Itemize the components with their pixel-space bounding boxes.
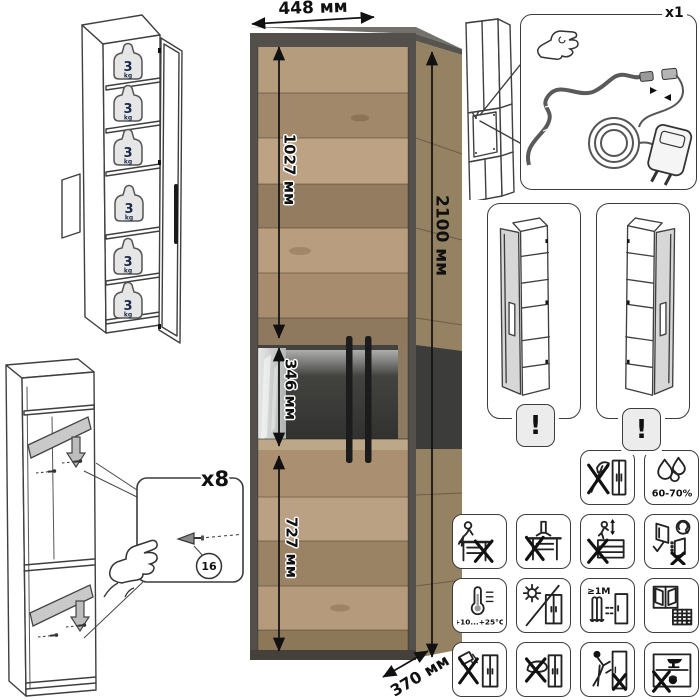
svg-text:kg: kg bbox=[124, 159, 132, 166]
hand-icon bbox=[538, 31, 578, 59]
no-climbing-icon bbox=[580, 514, 635, 569]
heater-distance-icon: ≥1M bbox=[580, 578, 635, 633]
pin-quantity: x8 bbox=[201, 467, 229, 491]
ventilation-calendar-icon: 21 bbox=[644, 578, 699, 633]
bottom-section-label: 727 мм bbox=[284, 511, 299, 585]
no-abrasive-cleaning-icon bbox=[516, 642, 571, 697]
temperature-range-icon: +10...+25°C bbox=[452, 578, 507, 633]
warning-badge: ! bbox=[622, 408, 661, 451]
no-dragging-icon bbox=[580, 642, 635, 697]
no-direct-sunlight-icon bbox=[516, 578, 571, 633]
cabinet-render bbox=[240, 8, 470, 700]
height-label: 2100 мм bbox=[433, 181, 450, 291]
led-wiring-panel bbox=[520, 14, 697, 190]
no-standing-icon bbox=[516, 514, 571, 569]
door-handle bbox=[365, 336, 372, 463]
top-section-label: 1027 мм bbox=[282, 124, 297, 216]
shelf-load-diagram: 3kg 3kg 3kg 3kg 3kg 3kg bbox=[8, 2, 210, 350]
open-door bbox=[158, 38, 182, 343]
no-heavy-items-icon bbox=[644, 642, 699, 697]
cabinet-back-view bbox=[452, 8, 524, 200]
svg-text:kg: kg bbox=[124, 312, 132, 319]
part-number-badge: 16 bbox=[197, 554, 222, 579]
svg-text:21: 21 bbox=[685, 619, 691, 625]
svg-text:≥1M: ≥1M bbox=[587, 586, 610, 597]
svg-text:kg: kg bbox=[124, 73, 132, 80]
display-section bbox=[258, 345, 408, 450]
cabinet-base bbox=[250, 650, 416, 660]
no-sharp-tools-icon bbox=[580, 450, 635, 505]
door-variant-right-panel bbox=[596, 203, 690, 419]
svg-text:kg: kg bbox=[124, 115, 132, 122]
lower-door-wood bbox=[258, 450, 408, 658]
humidity-icon: 60-70% bbox=[644, 450, 699, 505]
cable-connectors bbox=[640, 68, 678, 101]
middle-section-label: 346 мм bbox=[283, 353, 298, 427]
door-handle bbox=[174, 184, 178, 244]
variant-left-drawing bbox=[488, 204, 578, 416]
variant-right-drawing bbox=[597, 204, 687, 416]
svg-text:16: 16 bbox=[201, 560, 217, 573]
svg-text:+10...+25°C: +10...+25°C bbox=[457, 617, 503, 626]
instruction-sheet: 3kg 3kg 3kg 3kg 3kg 3kg bbox=[0, 0, 700, 700]
shelf-assembly-diagram: x8 16 bbox=[0, 345, 260, 700]
anvil-icon bbox=[667, 658, 682, 667]
power-adapter bbox=[589, 75, 693, 188]
svg-text:60-70%: 60-70% bbox=[651, 488, 692, 499]
warning-mark: ! bbox=[530, 411, 542, 441]
warning-badge: ! bbox=[516, 404, 555, 447]
warning-mark: ! bbox=[636, 415, 648, 445]
door-handle bbox=[346, 336, 353, 463]
door-variant-left-panel bbox=[487, 203, 581, 419]
no-spilling-liquids-icon bbox=[452, 642, 507, 697]
svg-text:kg: kg bbox=[125, 215, 133, 222]
arrow-left-icon bbox=[664, 94, 671, 101]
led-kit-qty: x1 bbox=[662, 6, 687, 21]
cabinet-side bbox=[82, 25, 106, 333]
no-sitting-icon bbox=[452, 514, 507, 569]
door-adjustment-icon bbox=[644, 514, 699, 569]
svg-text:kg: kg bbox=[124, 268, 132, 275]
hand-icon bbox=[104, 540, 157, 597]
led-wiring-drawing bbox=[521, 15, 695, 188]
side-trim bbox=[62, 174, 80, 238]
arrow-right-icon bbox=[650, 87, 657, 94]
